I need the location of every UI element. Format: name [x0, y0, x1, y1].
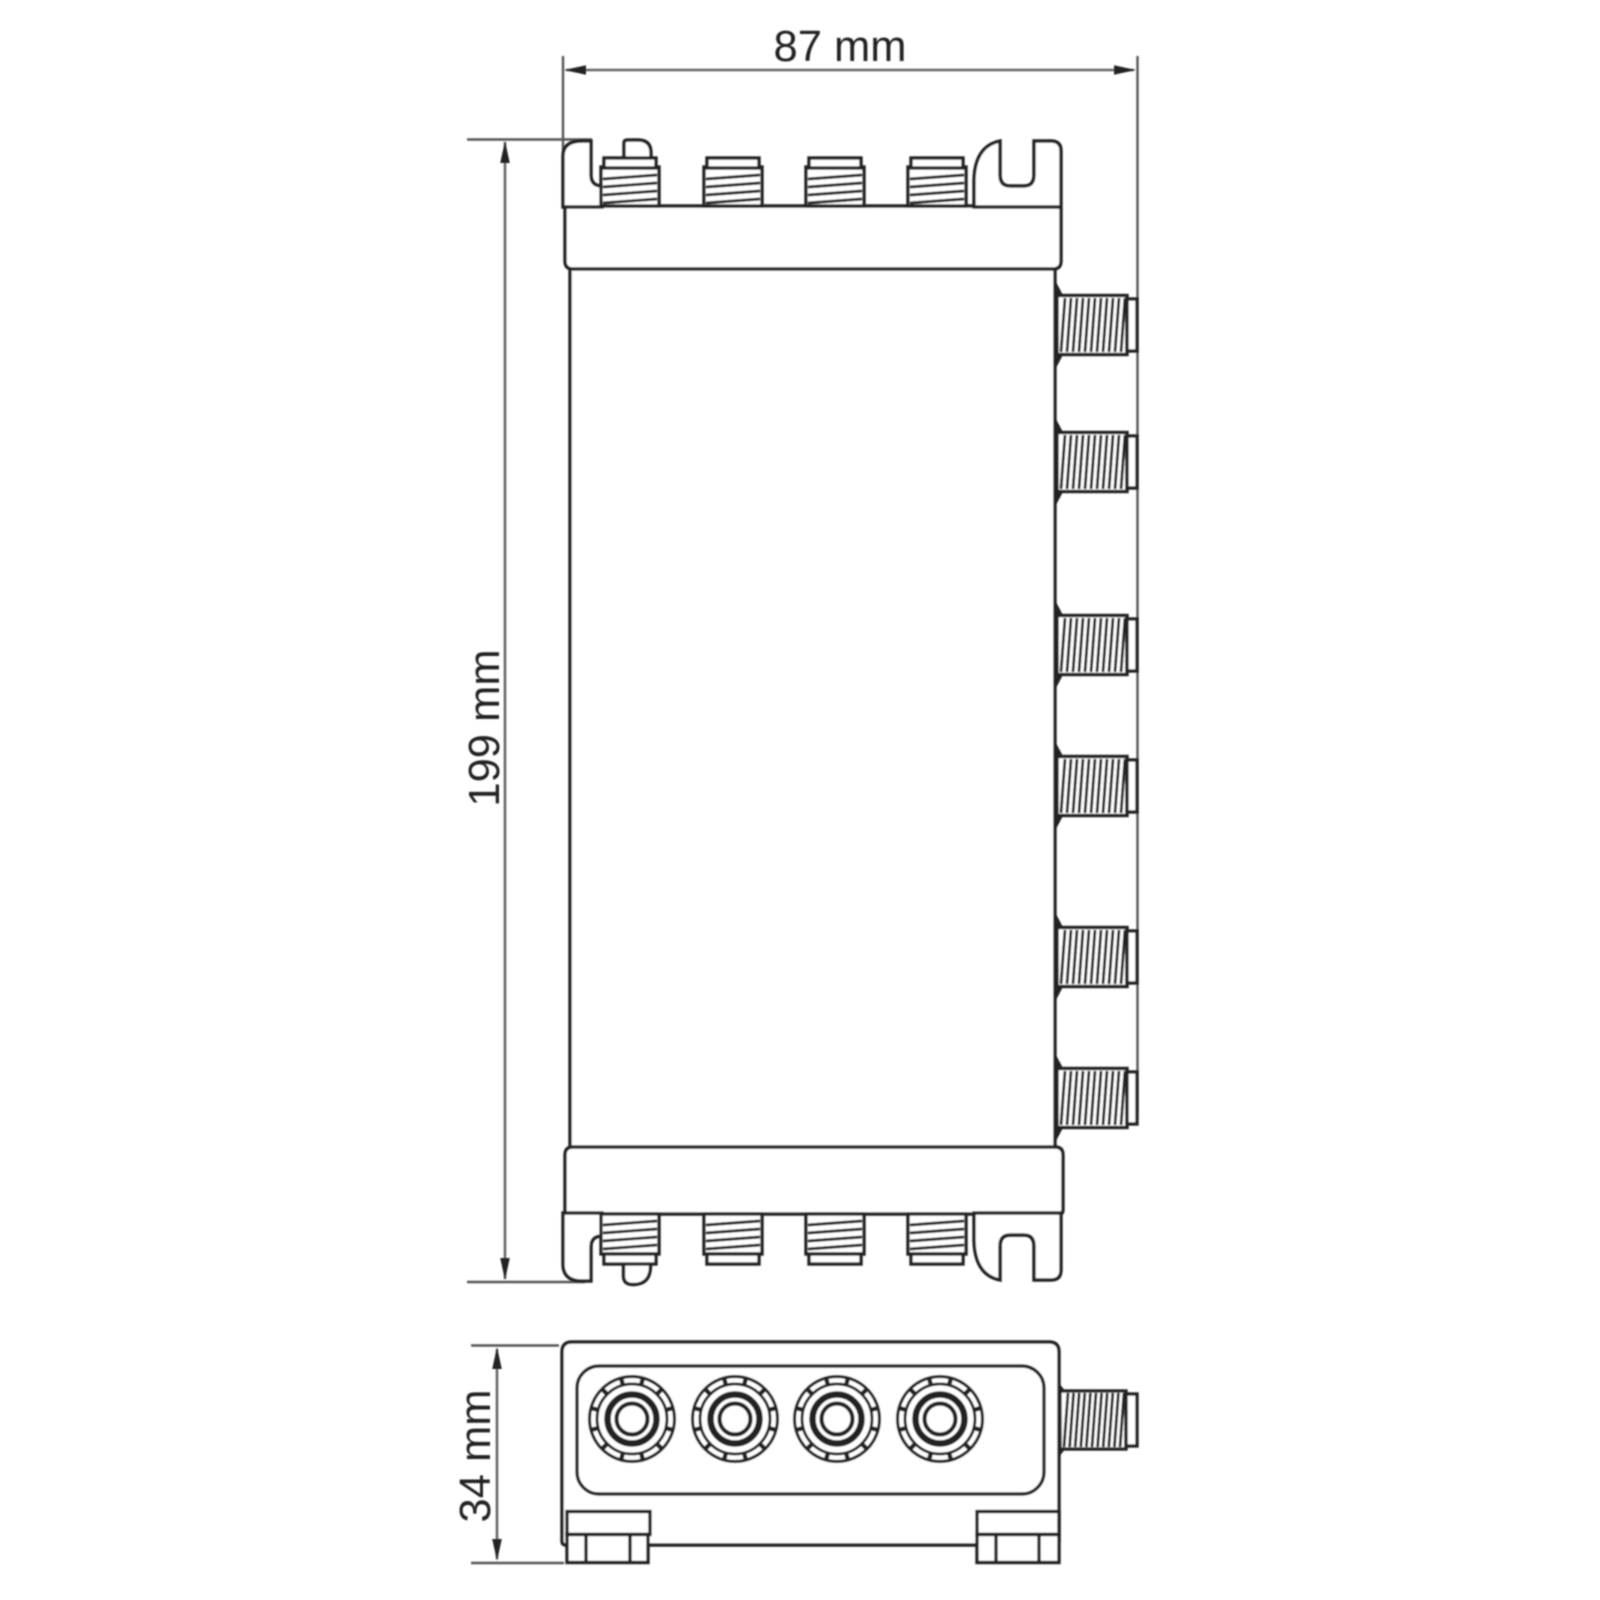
svg-text:87 mm: 87 mm [774, 23, 907, 71]
svg-text:34 mm: 34 mm [452, 1390, 500, 1523]
svg-text:199 mm: 199 mm [461, 649, 509, 806]
